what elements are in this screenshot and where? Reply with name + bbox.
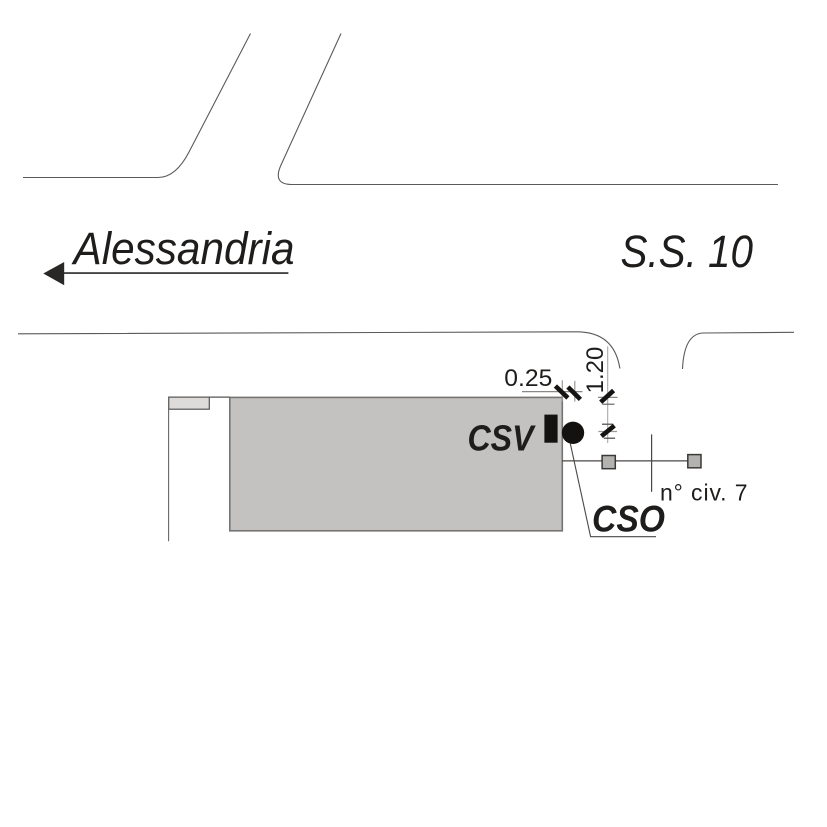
- svg-text:1.20: 1.20: [582, 347, 609, 394]
- svg-text:S.S. 10: S.S. 10: [621, 226, 754, 277]
- svg-text:0.25: 0.25: [504, 365, 552, 392]
- svg-text:Alessandria: Alessandria: [71, 223, 295, 274]
- svg-text:CSO: CSO: [592, 499, 665, 540]
- svg-text:n° civ. 7: n° civ. 7: [660, 480, 748, 506]
- svg-text:CSV: CSV: [468, 418, 537, 459]
